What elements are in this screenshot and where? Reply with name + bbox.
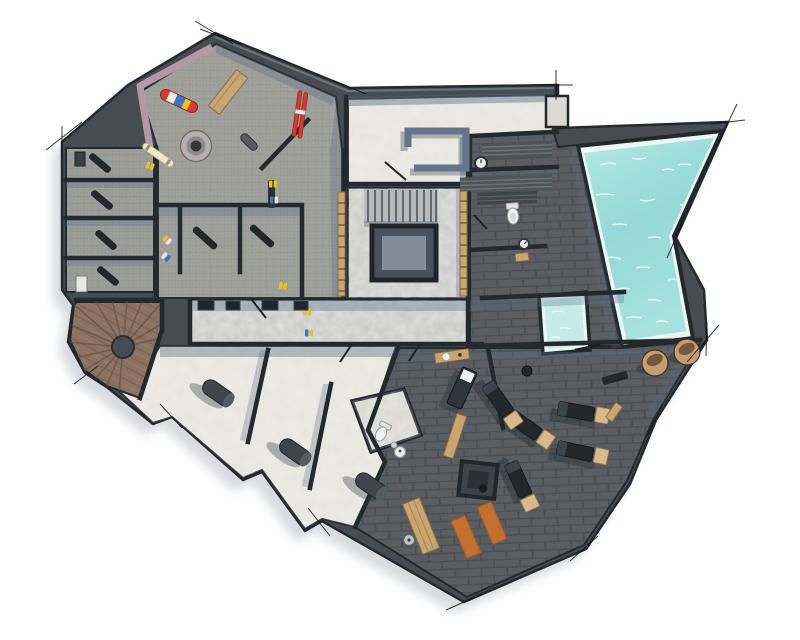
spiral-hub-column xyxy=(112,336,134,358)
appliance-white xyxy=(76,276,87,292)
weight-disc xyxy=(522,366,532,376)
wood-rail-right xyxy=(460,190,467,296)
floor-plan-screenshot xyxy=(0,0,800,640)
floor-plan xyxy=(0,0,800,640)
spa-gauge-2 xyxy=(519,239,529,249)
bathroom-sink xyxy=(395,447,406,458)
plyo-box xyxy=(458,461,497,499)
plank-disc xyxy=(404,535,415,546)
spa-mat xyxy=(515,252,529,261)
wall-niche xyxy=(546,96,568,127)
appliance-dark xyxy=(75,152,85,166)
wood-rail-left xyxy=(338,192,345,296)
bathroom-fixture-small xyxy=(391,442,397,448)
round-boot-dryer xyxy=(181,131,212,162)
spa-wall-gauge xyxy=(475,157,487,169)
